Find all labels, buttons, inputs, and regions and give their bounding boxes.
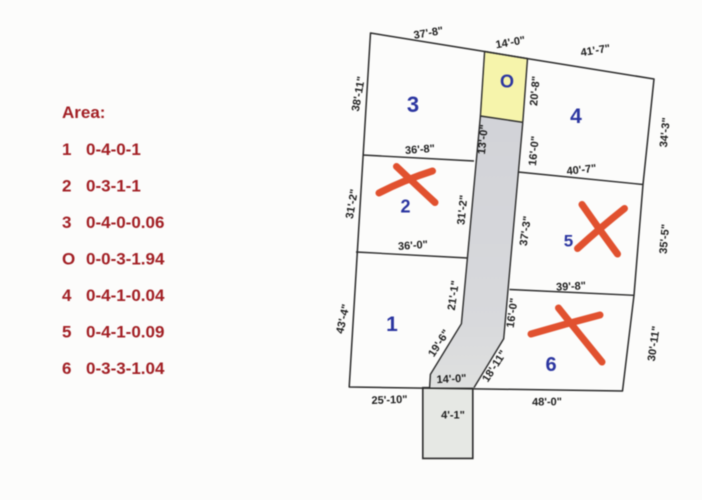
svg-text:36'-8": 36'-8" xyxy=(405,143,436,157)
svg-text:6: 6 xyxy=(62,359,71,378)
svg-text:3: 3 xyxy=(62,213,71,232)
svg-text:0-4-1-0.09: 0-4-1-0.09 xyxy=(86,323,164,342)
svg-text:2: 2 xyxy=(62,177,71,196)
svg-text:4: 4 xyxy=(570,105,582,128)
svg-text:5: 5 xyxy=(62,323,71,342)
svg-text:1: 1 xyxy=(386,313,398,336)
svg-text:39'-8": 39'-8" xyxy=(556,280,586,294)
svg-text:4'-1": 4'-1" xyxy=(441,409,465,421)
svg-text:3: 3 xyxy=(407,92,419,117)
svg-text:O: O xyxy=(62,250,75,269)
svg-text:0-3-3-1.04: 0-3-3-1.04 xyxy=(86,359,165,378)
svg-text:0-4-1-0.04: 0-4-1-0.04 xyxy=(86,286,165,305)
svg-text:0-4-0-1: 0-4-0-1 xyxy=(86,140,141,159)
svg-text:25'-10": 25'-10" xyxy=(371,394,407,407)
svg-text:O: O xyxy=(500,72,514,92)
svg-text:14'-0": 14'-0" xyxy=(436,373,466,387)
svg-text:48'-0": 48'-0" xyxy=(532,396,562,409)
svg-text:1: 1 xyxy=(62,140,71,159)
svg-text:36'-0": 36'-0" xyxy=(398,239,429,253)
svg-text:2: 2 xyxy=(400,197,410,217)
svg-text:6: 6 xyxy=(545,354,556,376)
svg-text:0-0-3-1.94: 0-0-3-1.94 xyxy=(86,250,165,269)
svg-text:5: 5 xyxy=(564,232,573,251)
svg-text:0-4-0-0.06: 0-4-0-0.06 xyxy=(86,213,164,232)
svg-text:0-3-1-1: 0-3-1-1 xyxy=(86,177,141,196)
svg-text:Area:: Area: xyxy=(62,103,105,122)
svg-text:4: 4 xyxy=(62,286,72,305)
